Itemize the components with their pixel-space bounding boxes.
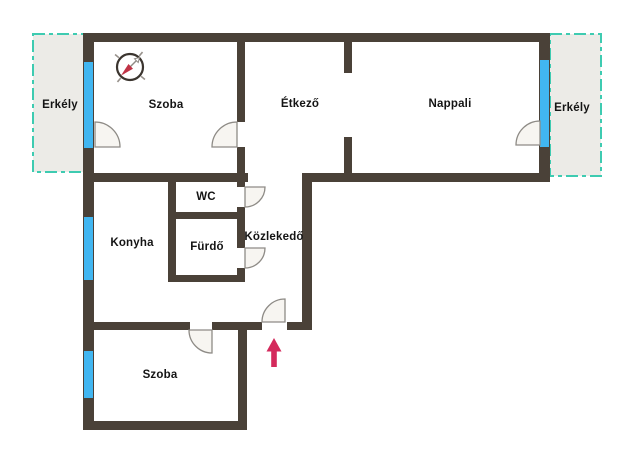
wall-under-szoba-top [83, 173, 248, 182]
doors [95, 121, 540, 353]
window-szoba-bottom [84, 351, 93, 398]
entrance-arrow-icon [267, 338, 282, 367]
wall-szoba-etkezo-upper [237, 42, 245, 122]
room-labels: Erkély Szoba Étkező Nappali Erkély Konyh… [42, 97, 590, 381]
window-nappali [540, 60, 549, 147]
door-szoba-bottom [189, 330, 212, 353]
door-wc [245, 187, 265, 207]
wall-furdo-bottom [168, 275, 245, 282]
door-entrance [262, 299, 285, 322]
label-wc: WC [196, 191, 216, 203]
label-nappali: Nappali [429, 98, 472, 110]
wall-wc-right-upper [237, 182, 245, 187]
label-furdo: Fürdő [190, 241, 224, 253]
wall-etkezo-nappali-bottom-stub [344, 137, 352, 174]
window-konyha [84, 217, 93, 280]
wall-bottom-seg-3 [287, 322, 312, 330]
window-szoba-top [84, 62, 93, 148]
wall-szoba-bottom-bottom [83, 421, 247, 430]
label-szoba-bottom: Szoba [143, 369, 178, 381]
entrance-arrow [267, 338, 282, 367]
wall-bottom-seg-2 [212, 322, 262, 330]
wall-wc-bottom [168, 212, 245, 219]
door-szoba-top [212, 122, 237, 147]
label-szoba-top: Szoba [149, 99, 184, 111]
wall-kozlekedo-right [302, 173, 312, 330]
label-kozlekedo: Közlekedő [244, 231, 303, 243]
label-etkezo: Étkező [281, 97, 319, 110]
label-erkely-left: Erkély [42, 99, 78, 111]
wall-bottom-seg-1 [88, 322, 190, 330]
label-erkely-right: Erkély [554, 102, 590, 114]
door-leaves [95, 121, 540, 353]
label-konyha: Konyha [110, 237, 154, 249]
floor-plan-canvas: Erkély Szoba Étkező Nappali Erkély Konyh… [0, 0, 623, 450]
wall-szoba-bottom-right [238, 330, 247, 430]
wall-etkezo-nappali-top-stub [344, 42, 352, 73]
wall-top [83, 33, 550, 42]
door-balcony-left [95, 122, 120, 147]
floor-plan: Erkély Szoba Étkező Nappali Erkély Konyh… [0, 0, 623, 450]
wall-bottom-right-band [302, 173, 550, 182]
wall-wc-furdo-left [168, 182, 176, 282]
wall-szoba-etkezo-lower [237, 147, 245, 182]
compass-rose-icon [115, 52, 145, 82]
door-balcony-right [516, 121, 540, 145]
door-furdo [245, 248, 265, 268]
